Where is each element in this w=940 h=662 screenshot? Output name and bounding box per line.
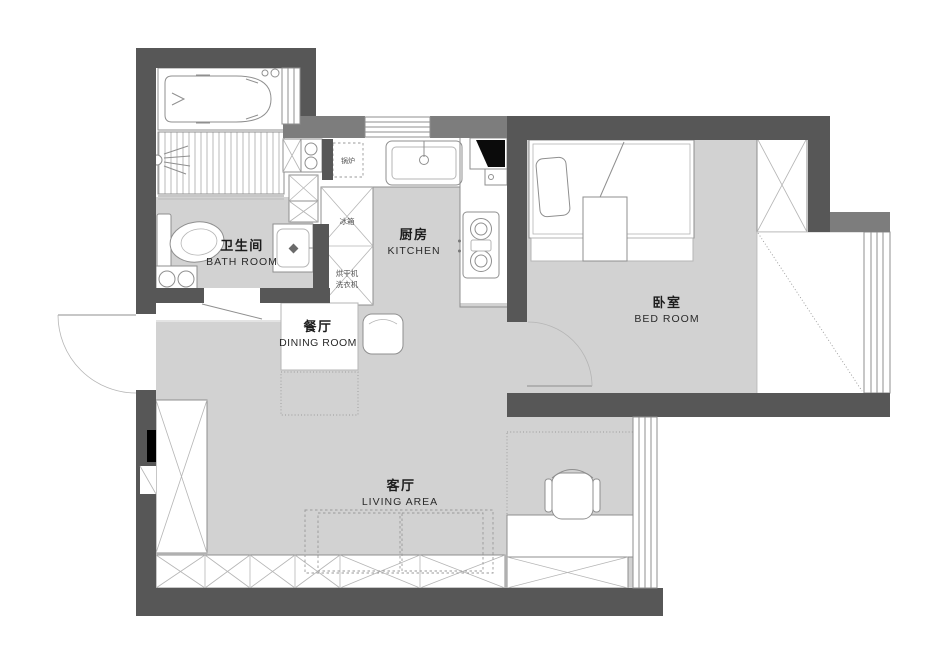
boiler-box: 锅炉 bbox=[333, 143, 363, 177]
dining-label-zh: 餐厅 bbox=[302, 319, 332, 334]
dining-chair bbox=[363, 314, 403, 354]
bed bbox=[529, 140, 694, 261]
wall-vanity-kitchen bbox=[313, 224, 329, 292]
floor-plan: 锅炉 冰箱 烘干机 洗衣机 bbox=[0, 0, 940, 662]
entry-door bbox=[58, 315, 136, 393]
bedroom-wardrobe bbox=[757, 138, 807, 232]
kitchen-label-en: KITCHEN bbox=[387, 245, 440, 257]
gas-stove bbox=[458, 212, 499, 278]
shower-hatching bbox=[158, 132, 284, 194]
bedroom-label-en: BED ROOM bbox=[634, 313, 699, 325]
bedroom-label-zh: 卧室 bbox=[652, 295, 681, 310]
bathroom-label-en: BATH ROOM bbox=[206, 256, 278, 268]
bay-window-glazing bbox=[864, 232, 890, 393]
wall-bedroom-right bbox=[808, 140, 830, 232]
corner-cabinet bbox=[470, 138, 507, 185]
dryer-label: 烘干机 bbox=[336, 268, 359, 278]
wall-bedroom-top bbox=[507, 116, 830, 140]
bathtub bbox=[158, 68, 284, 130]
floor-plan-canvas: 锅炉 冰箱 烘干机 洗衣机 bbox=[0, 0, 940, 662]
desk-chair bbox=[545, 470, 600, 520]
wall-bedroom-bottom bbox=[507, 393, 890, 417]
wall-kitchen-bedroom-divider bbox=[507, 140, 527, 322]
wall-niche bbox=[140, 466, 156, 494]
pillow bbox=[536, 157, 571, 217]
shaft-box bbox=[283, 139, 301, 172]
boiler-label: 锅炉 bbox=[341, 156, 355, 165]
desk-cabinet bbox=[507, 557, 628, 588]
bedside-table bbox=[583, 197, 627, 261]
wall-duct bbox=[147, 430, 156, 462]
bathroom-sliding-door bbox=[156, 303, 290, 322]
utility-shafts bbox=[283, 139, 322, 222]
bathroom-label-zh: 卫生间 bbox=[220, 238, 264, 253]
wall-bay-top bbox=[830, 212, 890, 232]
bay-window bbox=[757, 232, 890, 393]
shaft-box bbox=[289, 175, 318, 201]
dining-label-en: DINING ROOM bbox=[279, 337, 357, 349]
tall-cabinet bbox=[156, 400, 207, 553]
bathroom-window bbox=[282, 68, 300, 124]
cooktop-circles-box bbox=[301, 139, 322, 172]
wall-bottom bbox=[136, 588, 663, 616]
desk bbox=[507, 515, 633, 557]
washer-label: 洗衣机 bbox=[336, 279, 359, 289]
living-window bbox=[633, 417, 657, 588]
shaft-box bbox=[289, 201, 318, 222]
kitchen-window bbox=[365, 117, 430, 137]
living-label-zh: 客厅 bbox=[386, 478, 415, 493]
kitchen-sink bbox=[386, 141, 462, 185]
wall-bath-bottom-left bbox=[156, 288, 204, 303]
wall-left-upper bbox=[136, 48, 156, 314]
fridge-label: 冰箱 bbox=[340, 216, 355, 226]
low-cabinet-row bbox=[156, 555, 505, 588]
shower-stall bbox=[152, 132, 284, 199]
wall-shaft bbox=[322, 139, 333, 180]
kitchen-label-zh: 厨房 bbox=[399, 227, 428, 242]
washbasin-vanity bbox=[273, 224, 316, 272]
living-label-en: LIVING AREA bbox=[362, 496, 438, 508]
wall-bathroom-top bbox=[136, 48, 316, 68]
wall-kitchen-top-right bbox=[430, 116, 507, 138]
